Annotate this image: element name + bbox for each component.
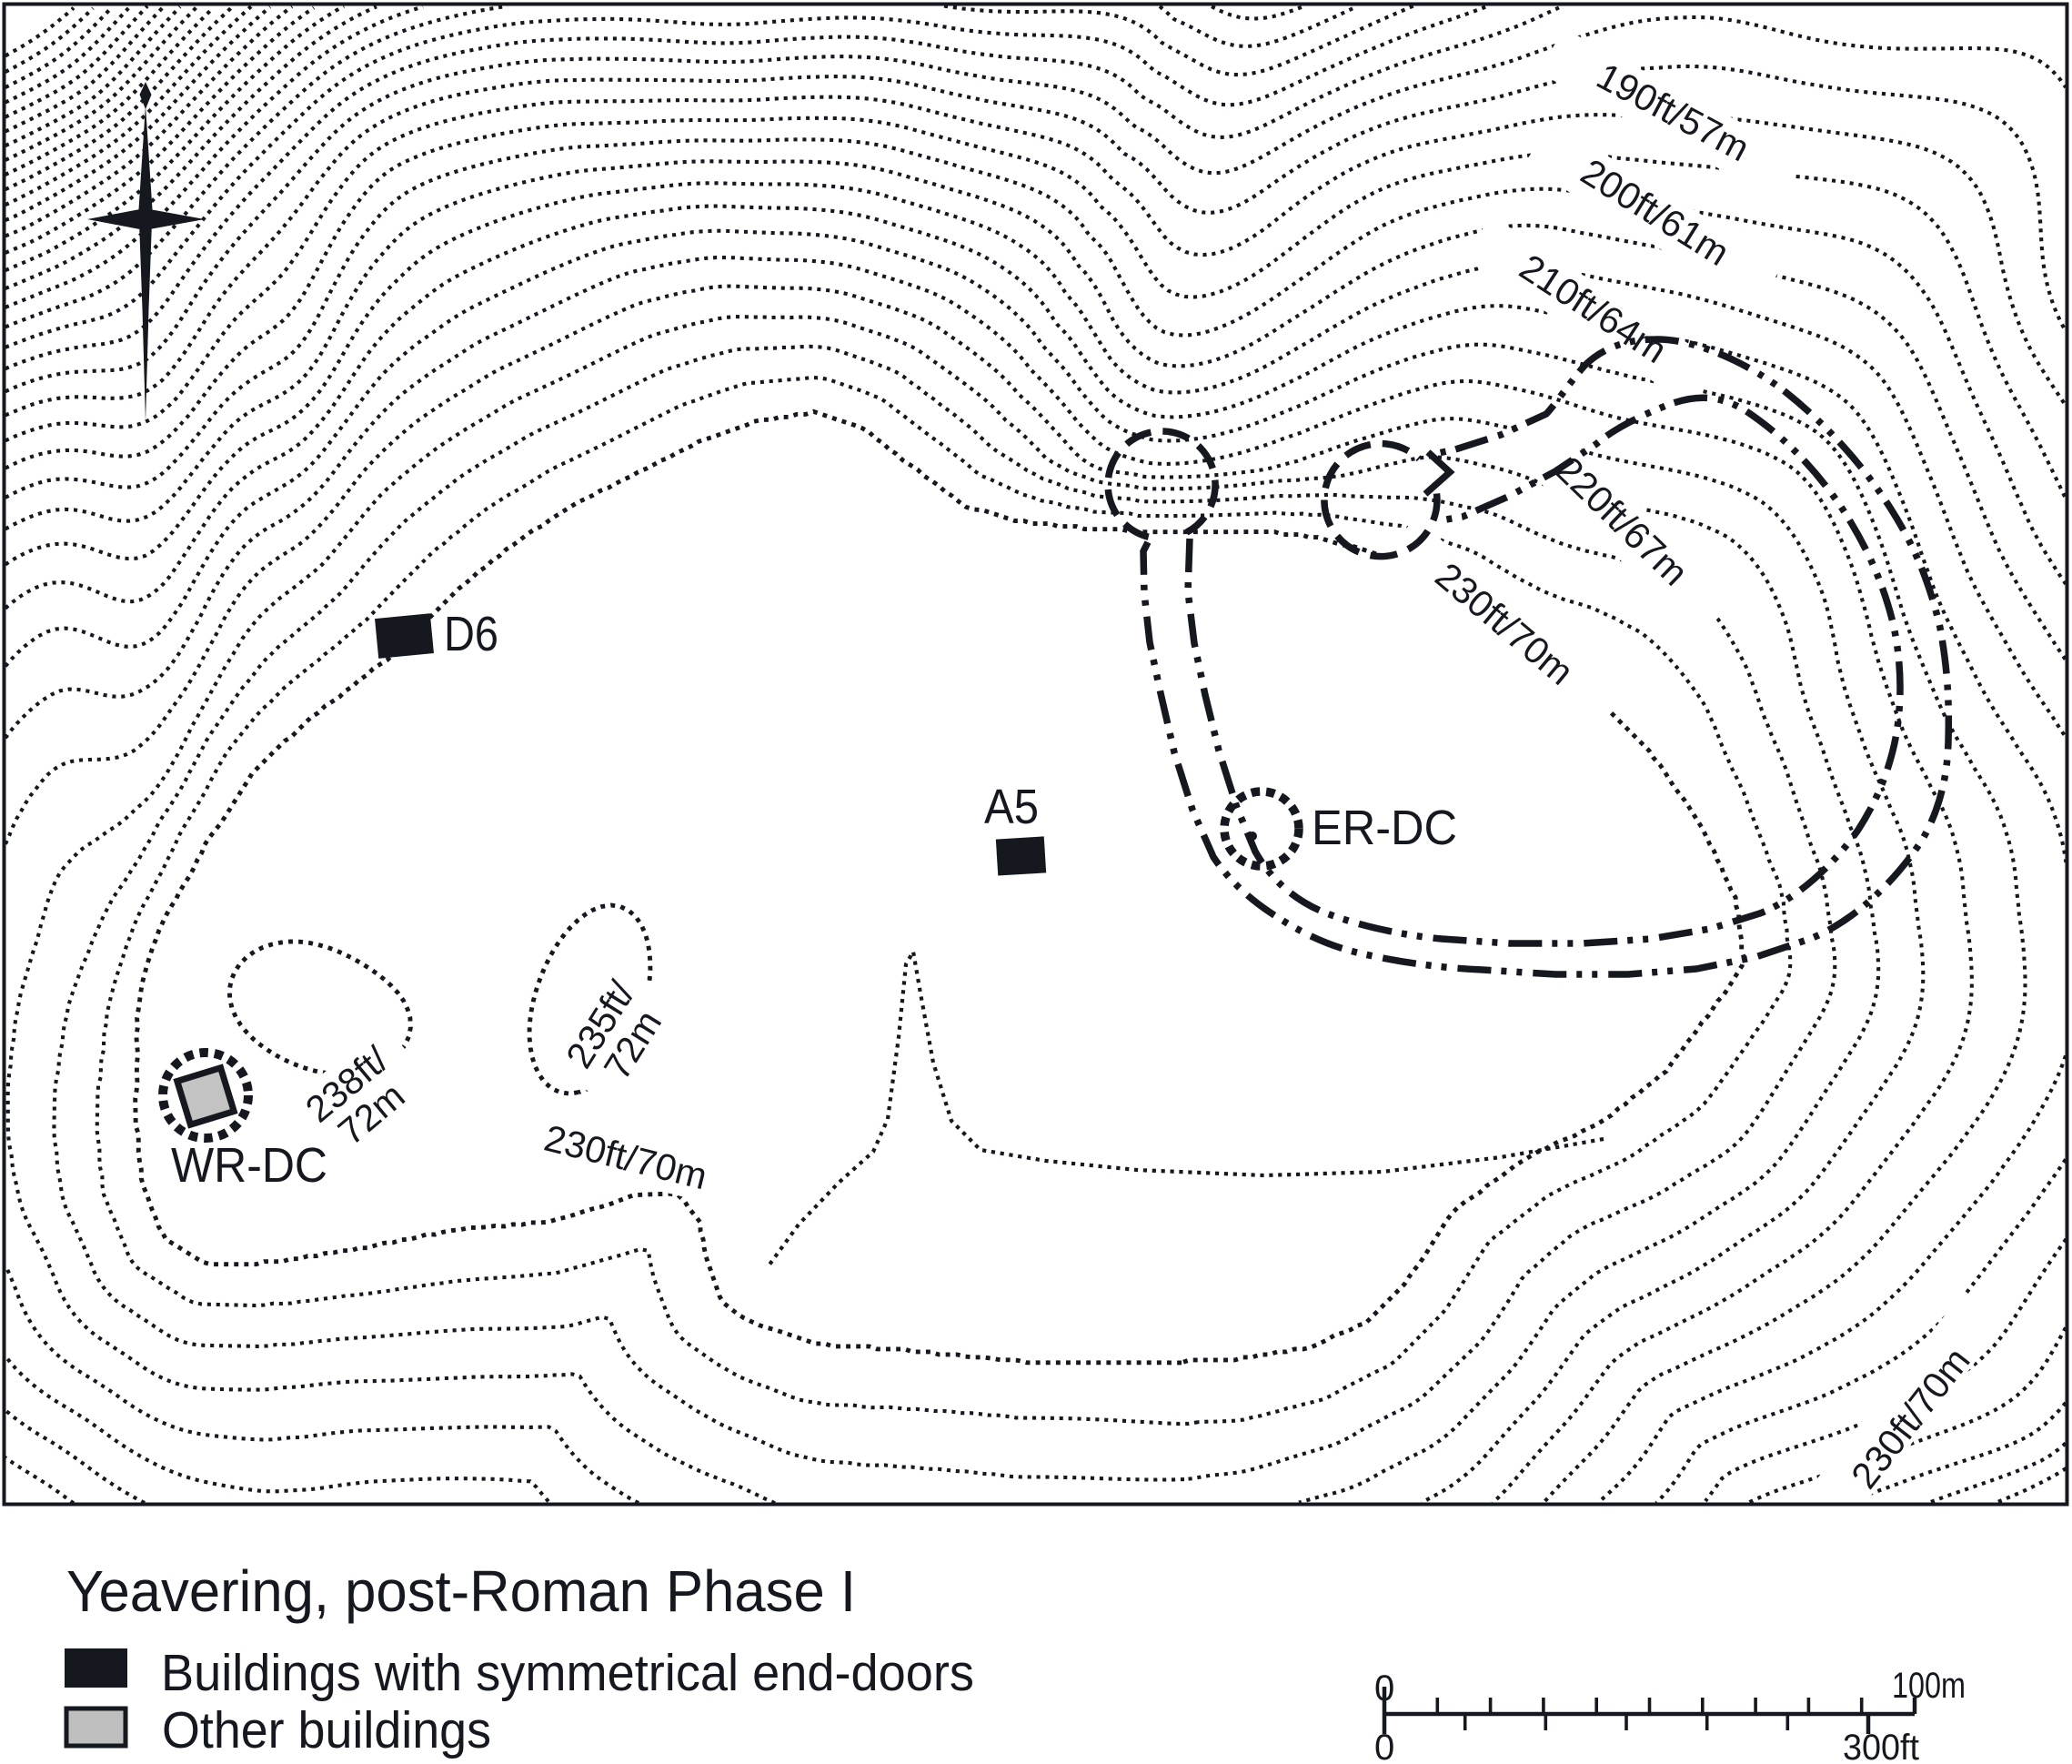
svg-text:300ft: 300ft (1843, 1728, 1919, 1764)
svg-text:100m: 100m (1892, 1666, 1966, 1706)
svg-text:WR-DC: WR-DC (171, 1138, 327, 1193)
svg-text:0: 0 (1374, 1668, 1394, 1709)
svg-text:Yeavering, post-Roman Phase I: Yeavering, post-Roman Phase I (66, 1558, 856, 1624)
svg-text:D6: D6 (444, 607, 498, 661)
svg-text:Other buildings: Other buildings (162, 1701, 491, 1759)
svg-text:0: 0 (1374, 1728, 1394, 1764)
svg-text:A5: A5 (984, 780, 1039, 834)
svg-text:ER-DC: ER-DC (1312, 801, 1457, 855)
svg-text:Buildings with symmetrical end: Buildings with symmetrical end-doors (161, 1644, 974, 1702)
